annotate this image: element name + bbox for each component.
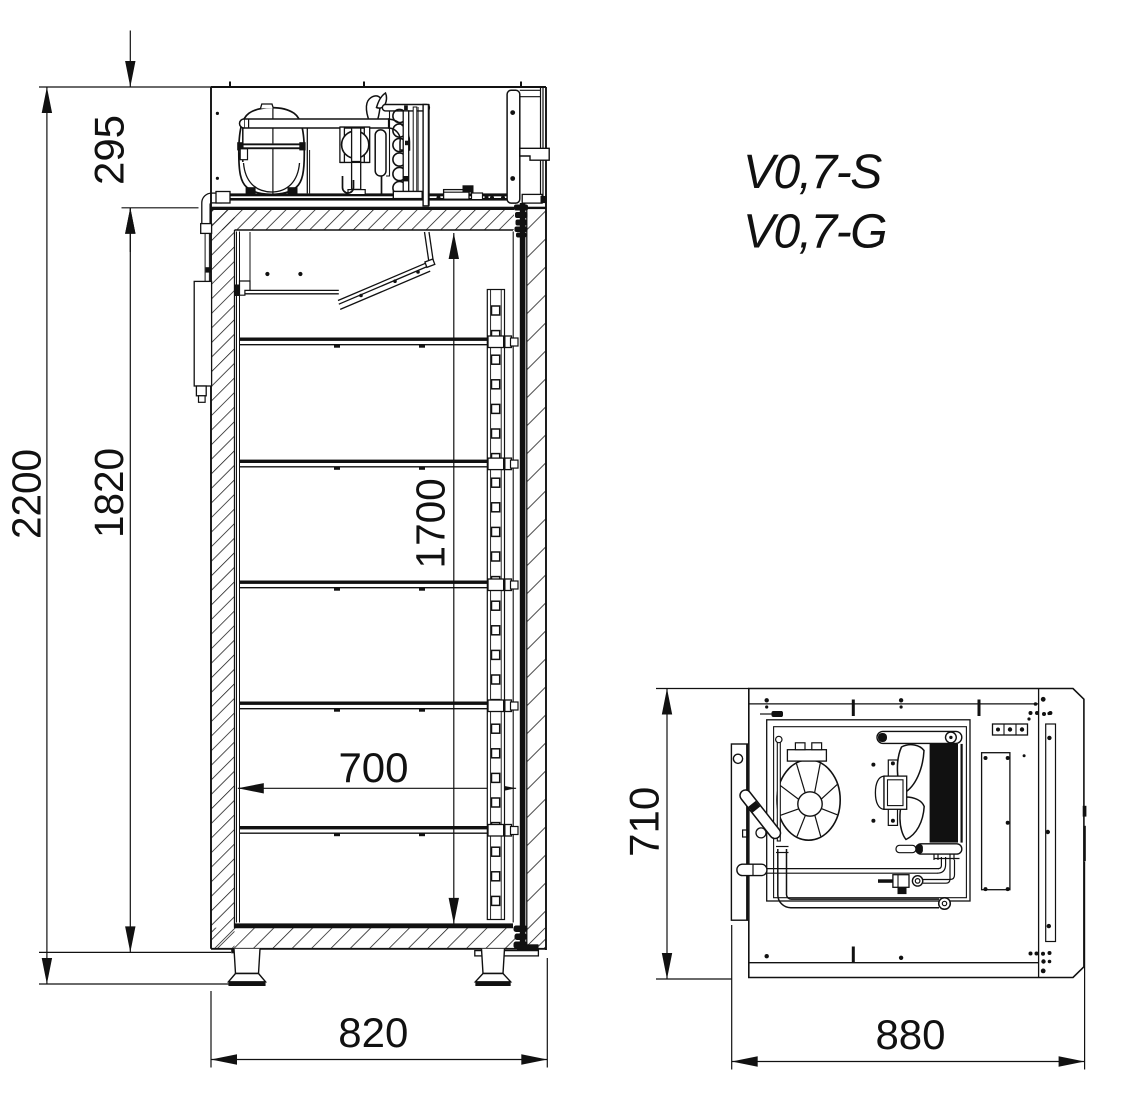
svg-text:V0,7-S: V0,7-S — [743, 146, 882, 199]
svg-text:880: 880 — [875, 1011, 945, 1058]
svg-text:710: 710 — [620, 787, 667, 857]
svg-text:V0,7-G: V0,7-G — [743, 206, 886, 259]
svg-text:1700: 1700 — [407, 478, 453, 568]
svg-text:295: 295 — [86, 115, 133, 185]
svg-text:820: 820 — [338, 1009, 408, 1056]
svg-text:1820: 1820 — [86, 448, 132, 538]
svg-text:2200: 2200 — [4, 449, 50, 539]
svg-text:700: 700 — [338, 744, 408, 791]
